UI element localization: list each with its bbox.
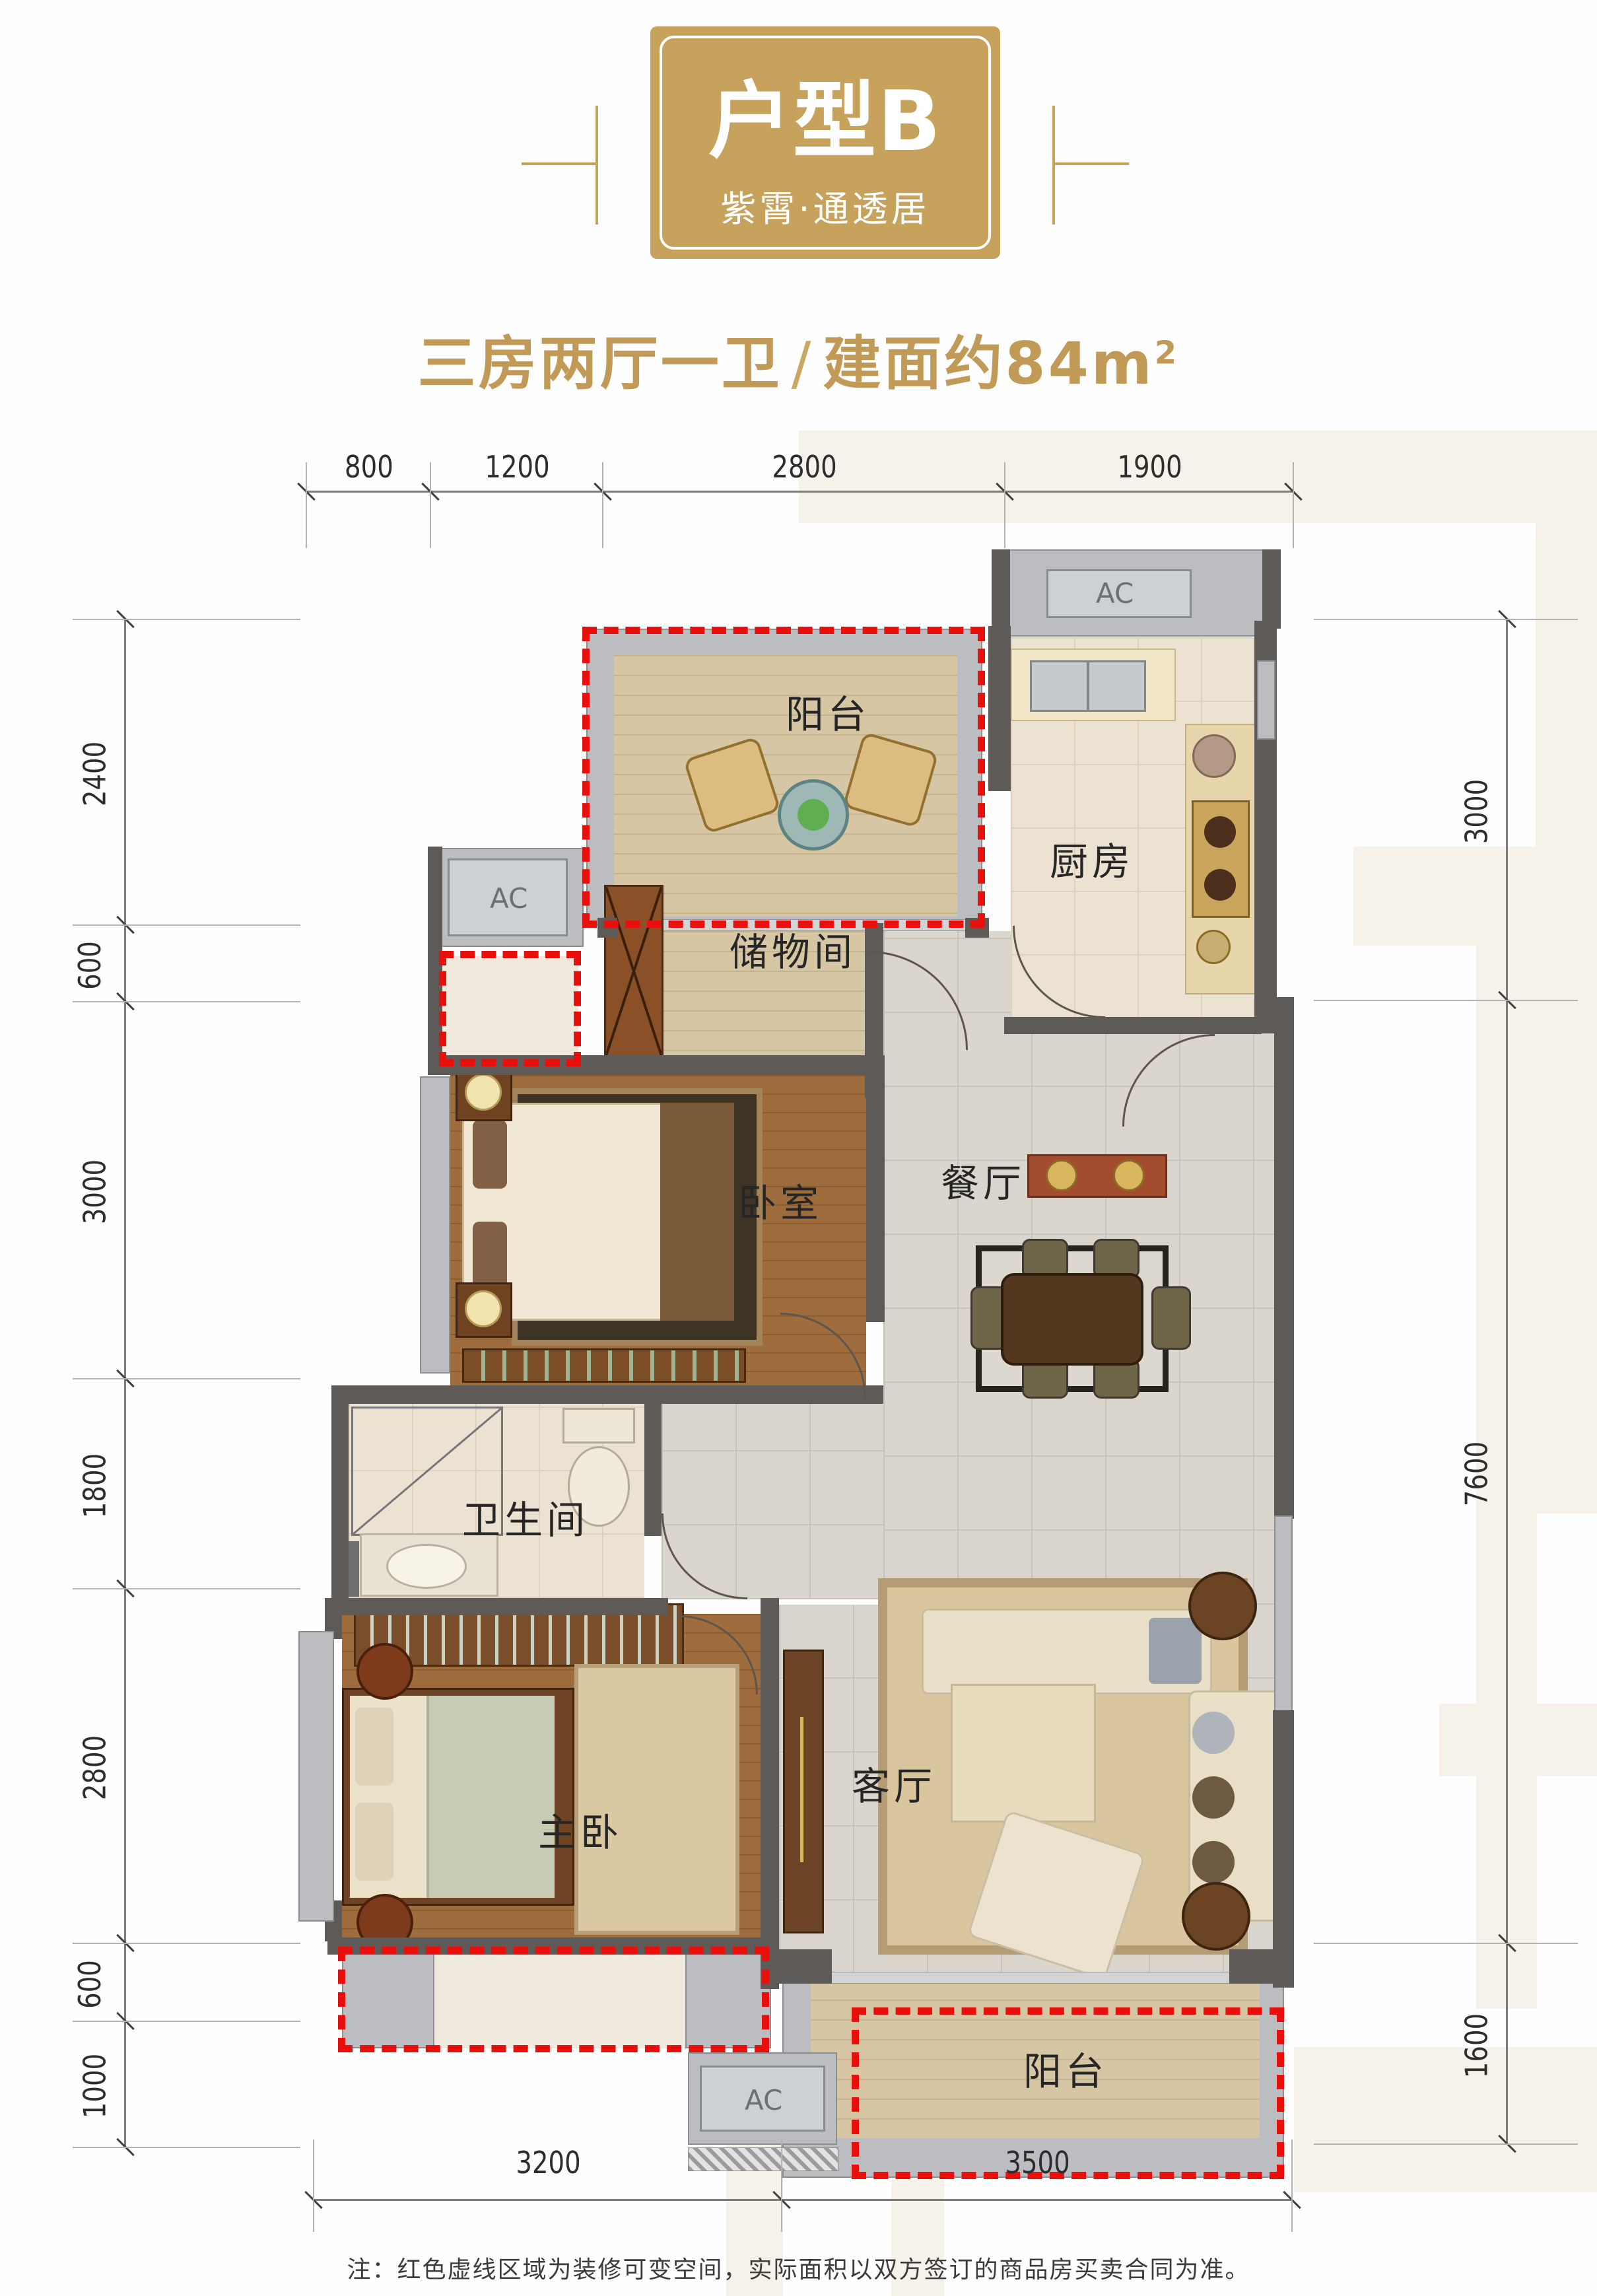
kitchen-pot [1192,734,1236,778]
washer [349,1541,359,1597]
room-label-balcony-bottom: 阳台 [1023,2040,1108,2096]
bg-pattern [1536,431,1597,1513]
dim-ext [1314,1943,1578,1944]
wall [1273,1710,1294,1988]
bath-sink [386,1544,467,1589]
bedroom-blanket [660,1103,734,1321]
ac-label-left: AC [490,882,527,915]
bg-pattern [1439,1704,1597,1776]
badge-tagline: 紫霄·通透居 [650,180,1000,232]
dim-ext [1293,462,1294,548]
dim-ext [73,1943,300,1944]
sideboard-bowl [1113,1160,1145,1191]
wall [1229,1949,1275,1984]
dim-ext [73,2147,300,2148]
subtitle-area-sup: 2 [1155,335,1180,372]
badge-bracket-right [1052,162,1129,165]
bg-pattern [799,431,1597,523]
wall [1262,549,1281,629]
dim-top-1200: 1200 [485,449,549,485]
kitchen-window [1257,660,1275,740]
dim-ext [1314,2143,1578,2145]
master-pillow [355,1803,393,1881]
chaise-pillow [1149,1618,1202,1684]
dim-left-2400: 2400 [77,742,113,806]
unit-badge: 户型B 紫霄·通透居 [650,26,1000,259]
dim-ext [73,1378,300,1379]
window-sill-hatch [688,2147,838,2171]
dim-left-600: 600 [72,941,108,990]
sofa-pillow [1192,1776,1235,1819]
wall [331,1598,668,1615]
dim-line-right [1506,619,1508,2143]
master-stool [357,1643,413,1700]
master-bay-window [298,1631,334,1922]
dining-chair [1093,1239,1139,1278]
stove-burner [1204,816,1236,848]
side-table [1182,1882,1250,1951]
subtitle-divider: / [782,330,823,398]
wall [988,626,1011,791]
wall [644,1404,662,1536]
dim-ext [73,2021,300,2022]
badge-bracket-right [1052,106,1055,225]
master-rug [574,1664,739,1935]
bg-pattern [1294,2047,1597,2192]
nightstand-lamp [465,1290,502,1327]
sofa-pillow [1192,1712,1235,1754]
wall [866,1055,885,1322]
dim-right-7600: 7600 [1459,1442,1495,1506]
wall [992,549,1010,629]
dining-chair [1022,1239,1068,1278]
badge-bracket-left [522,162,598,165]
wall [1004,1017,1262,1034]
wall [779,1949,832,1984]
room-label-living: 客厅 [852,1755,936,1811]
dim-left-2800: 2800 [77,1735,113,1800]
bedroom-pillow [473,1222,507,1290]
kitchen-bowl [1196,930,1231,964]
bg-pattern [1353,847,1597,946]
badge-title: 户型B [650,54,1000,174]
room-label-master: 主卧 [538,1801,623,1857]
bedroom-bench [462,1348,746,1383]
coffee-table [951,1684,1096,1823]
wall [331,1404,349,1602]
master-blanket [426,1696,555,1898]
stove-burner [1204,869,1236,901]
sofa-pillow [1192,1841,1235,1883]
dim-ext [1314,619,1578,620]
footnote: 注：红色虚线区域为装修可变空间，实际面积以双方签订的商品房买卖合同为准。 [0,2250,1597,2285]
dim-line-left [124,619,126,2147]
flex-zone-lower-left [338,1947,769,2052]
kitchen-sink-divider [1087,662,1089,711]
dim-left-1800: 1800 [77,1453,113,1518]
dining-table [1001,1273,1143,1366]
room-label-bathroom: 卫生间 [462,1489,589,1545]
dining-chair [1151,1286,1191,1350]
sideboard-bowl [1046,1160,1077,1191]
ac-label-bottom: AC [745,2084,782,2116]
dim-ext [73,619,300,620]
dim-right-3000: 3000 [1459,779,1495,844]
bedroom-pillow [473,1120,507,1189]
room-label-dining: 餐厅 [941,1152,1025,1208]
flex-zone-balcony-top [582,627,985,928]
ac-label-top: AC [1096,577,1134,609]
dim-line-top [306,491,1293,493]
badge-bracket-left [595,106,598,225]
dim-ext [306,462,307,548]
tv-cabinet-handle [800,1717,803,1862]
dim-top-2800: 2800 [772,449,836,485]
master-pillow [355,1708,393,1786]
living-window [1274,1515,1293,1714]
dim-left-3000: 3000 [77,1160,113,1224]
dim-right-1600: 1600 [1459,2013,1495,2078]
nightstand-lamp [465,1074,502,1111]
dim-left-600b: 600 [72,1960,108,2009]
room-label-bedroom: 卧室 [738,1172,823,1228]
room-label-kitchen: 厨房 [1050,831,1134,886]
floorplan-poster: 户型B 紫霄·通透居 三房两厅一卫/建面约84m2 AC AC [0,0,1597,2296]
dim-ext [73,924,300,926]
dim-top-1900: 1900 [1117,449,1182,485]
room-label-balcony-top: 阳台 [786,683,870,739]
dim-ext [73,1001,300,1002]
subtitle-spec: 三房两厅一卫 [418,330,782,398]
unit-subtitle: 三房两厅一卫/建面约84m2 [0,317,1597,401]
dim-ext [1314,1000,1578,1001]
dim-bottom-3500: 3500 [1005,2145,1070,2180]
dim-ext [1004,462,1005,548]
bedroom-bay-window [420,1076,450,1374]
dim-ext [313,2139,314,2232]
wall [761,1598,779,1989]
dim-ext [602,462,603,548]
dim-top-800: 800 [345,449,393,485]
living-sliding-door [809,1972,1241,1984]
dim-ext [73,1588,300,1589]
dim-line-bottom [313,2199,1291,2201]
side-table [1188,1572,1257,1640]
room-label-storage: 储物间 [730,921,856,977]
toilet-tank [562,1408,635,1444]
tv-cabinet [783,1650,824,1933]
dim-ext [430,462,431,548]
wall [1274,997,1294,1519]
dim-bottom-3200: 3200 [516,2145,580,2180]
dim-ext [781,2139,782,2232]
flex-zone-left [439,951,581,1066]
dim-ext [1291,2139,1293,2232]
dim-left-1000: 1000 [77,2054,113,2118]
subtitle-area: 建面约84m [823,330,1154,398]
